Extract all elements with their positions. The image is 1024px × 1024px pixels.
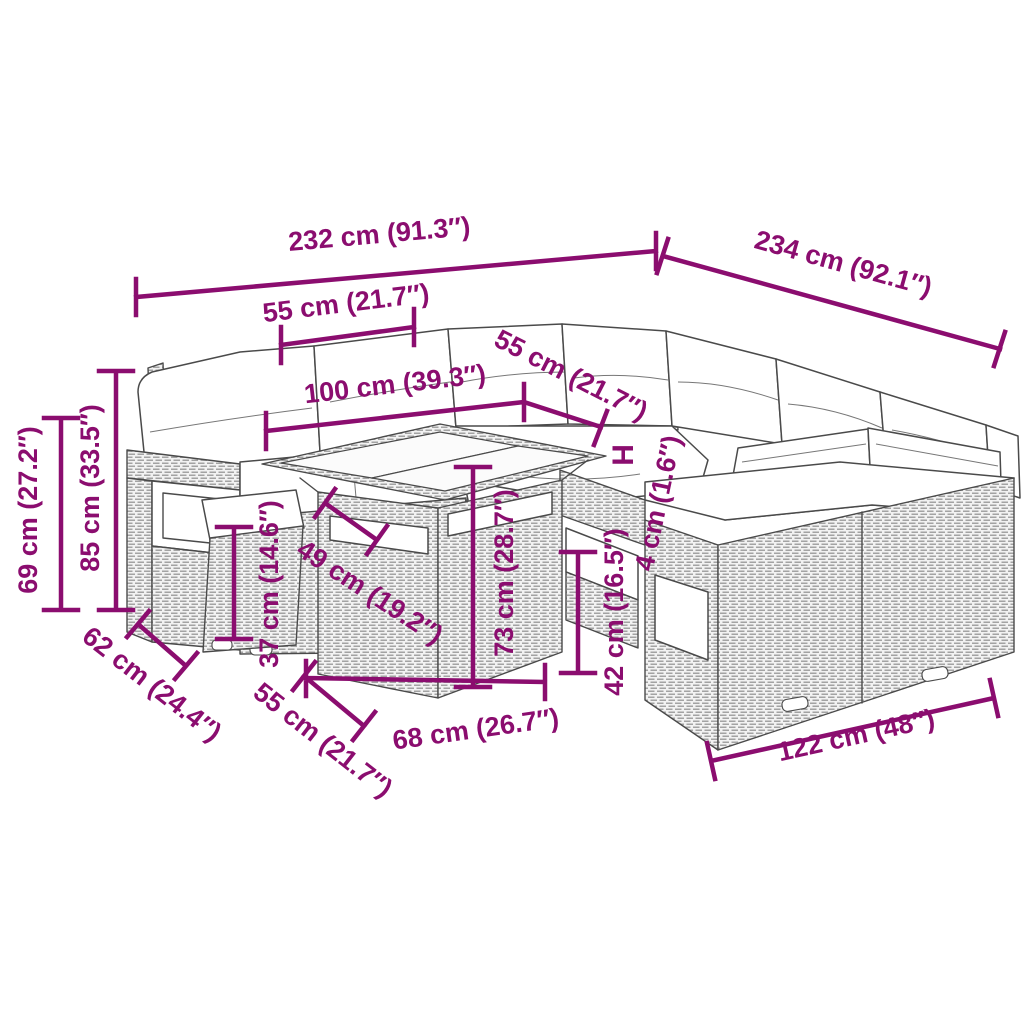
dimension-backrest-height: 85 cm (33.5″): [75, 371, 133, 610]
dim-label-footstool-height: 37 cm (14.6″): [254, 500, 284, 668]
dim-label-table-height: 73 cm (28.7″): [489, 489, 519, 657]
dim-label-overall-width: 232 cm (91.3″): [287, 211, 471, 257]
dim-label-seat-height: 42 cm (16.5″): [599, 528, 629, 696]
sofa-right: [645, 428, 1014, 750]
dim-label-table-width: 68 cm (26.7″): [391, 703, 561, 756]
dim-label-armrest-height: 69 cm (27.2″): [13, 426, 43, 594]
dim-label-backrest-height: 85 cm (33.5″): [75, 404, 105, 572]
dim-marker-h: H: [606, 444, 639, 466]
dimension-diagram: 232 cm (91.3″) 234 cm (92.1″) 55 cm (21.…: [0, 0, 1024, 1024]
dimension-armrest-height: 69 cm (27.2″): [13, 418, 78, 610]
dim-label-overall-depth: 234 cm (92.1″): [751, 224, 935, 302]
footstool: [202, 490, 304, 652]
dim-label-footstool-width: 55 cm (21.7″): [248, 677, 398, 804]
